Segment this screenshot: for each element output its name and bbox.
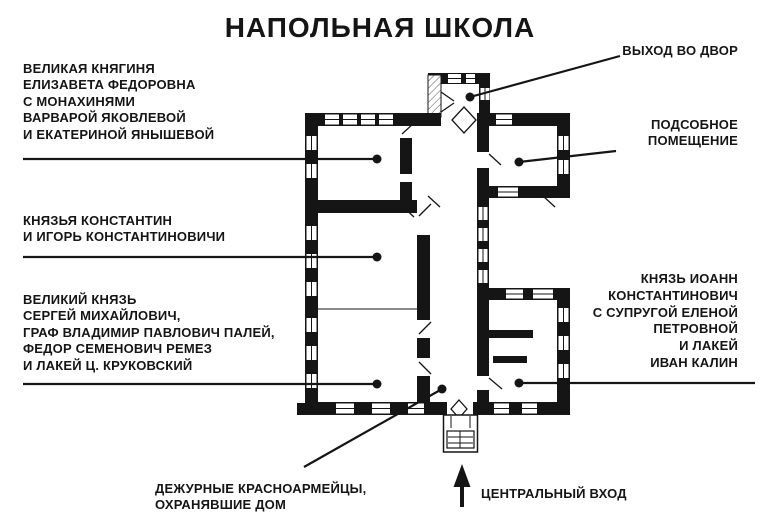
- label-guards: ДЕЖУРНЫЕ КРАСНОАРМЕЙЦЫ, ОХРАНЯВШИЕ ДОМ: [155, 481, 366, 514]
- door-diamond-top: [452, 107, 476, 133]
- label-line: ЕЛИЗАВЕТА ФЕДОРОВНА: [23, 77, 214, 93]
- wall-hall-west-a: [400, 138, 412, 174]
- callout-dot-guards-room: [438, 385, 447, 394]
- label-line: ФЕДОР СЕМЕНОВИЧ РЕМЕЗ: [23, 341, 275, 357]
- wall-south-right: [473, 402, 570, 415]
- windows-interior: [498, 188, 553, 299]
- label-line: ЦЕНТРАЛЬНЫЙ ВХОД: [481, 486, 627, 502]
- label-line: ГРАФ ВЛАДИМИР ПАВЛОВИЧ ПАЛЕЙ,: [23, 325, 275, 341]
- label-line: С СУПРУГОЙ ЕЛЕНОЙ: [593, 305, 738, 322]
- callout-dot-sergey-room: [373, 380, 382, 389]
- wall-corridor-west-b: [417, 338, 430, 358]
- page-title: НАПОЛЬНАЯ ШКОЛА: [0, 12, 760, 44]
- label-sergey: ВЕЛИКИЙ КНЯЗЬ СЕРГЕЙ МИХАЙЛОВИЧ, ГРАФ ВЛ…: [23, 292, 275, 374]
- hatched-wall: [428, 75, 441, 117]
- label-line: И ЛАКЕЙ Ц. КРУКОВСКИЙ: [23, 358, 275, 374]
- wall-utility-bottom: [477, 186, 570, 198]
- callout-line-exit-yard: [470, 56, 620, 97]
- label-line: ДЕЖУРНЫЕ КРАСНОАРМЕЙЦЫ,: [155, 481, 366, 497]
- label-line: ПОДСОБНОЕ: [648, 117, 738, 133]
- windows-east-wall: [559, 136, 569, 378]
- label-elizaveta: ВЕЛИКАЯ КНЯГИНЯ ЕЛИЗАВЕТА ФЕДОРОВНА С МО…: [23, 61, 214, 143]
- entrance-porch: [444, 415, 478, 452]
- wall-corridor-west-a: [417, 235, 430, 320]
- wall-utility-west-b: [477, 168, 489, 198]
- label-ioann: КНЯЗЬ ИОАНН КОНСТАНТИНОВИЧ С СУПРУГОЙ ЕЛ…: [593, 271, 738, 372]
- wall-vestibule-a: [477, 330, 533, 338]
- label-line: ВЕЛИКАЯ КНЯГИНЯ: [23, 61, 214, 77]
- callout-dots: [373, 93, 524, 394]
- label-line: ИВАН КАЛИН: [593, 355, 738, 372]
- callout-line-guards: [304, 389, 442, 467]
- label-line: И ЕКАТЕРИНОЙ ЯНЫШЕВОЙ: [23, 127, 214, 143]
- label-line: ВЫХОД ВО ДВОР: [622, 43, 738, 59]
- entrance-arrow-icon: [454, 464, 471, 507]
- label-line: ОХРАНЯВШИЕ ДОМ: [155, 497, 366, 513]
- label-line: ПЕТРОВНОЙ: [593, 321, 738, 338]
- wall-east-lower: [557, 288, 570, 415]
- callout-dot-exit-yard: [466, 93, 475, 102]
- callout-dot-konstantin-room: [373, 253, 382, 262]
- label-konstantin-igor: КНЯЗЬЯ КОНСТАНТИН И ИГОРЬ КОНСТАНТИНОВИЧ…: [23, 213, 225, 246]
- diagram-page: { "title": "НАПОЛЬНАЯ ШКОЛА", "callouts"…: [0, 0, 760, 532]
- callout-dot-ioann-room: [515, 379, 524, 388]
- wall-rightroom-west-b: [477, 390, 489, 402]
- windows-west-wall: [307, 136, 317, 388]
- wall-utility-west-a: [477, 126, 489, 152]
- wall-top-right: [477, 113, 570, 126]
- label-line: СЕРГЕЙ МИХАЙЛОВИЧ,: [23, 308, 275, 324]
- label-utility-room: ПОДСОБНОЕ ПОМЕЩЕНИЕ: [648, 117, 738, 150]
- label-exit-yard: ВЫХОД ВО ДВОР: [622, 43, 738, 59]
- label-line: ВАРВАРОЙ ЯКОВЛЕВОЙ: [23, 110, 214, 126]
- label-line: КНЯЗЬ ИОАНН: [593, 271, 738, 288]
- label-line: С МОНАХИНЯМИ: [23, 94, 214, 110]
- wall-vestibule-b: [493, 356, 527, 363]
- wall-rightroom-top: [477, 288, 570, 300]
- label-line: И ЛАКЕЙ: [593, 338, 738, 355]
- label-line: И ИГОРЬ КОНСТАНТИНОВИЧИ: [23, 229, 225, 245]
- label-line: КОНСТАНТИНОВИЧ: [593, 288, 738, 305]
- corner-pilaster: [297, 403, 306, 415]
- label-line: ПОМЕЩЕНИЕ: [648, 133, 738, 149]
- label-central-entrance: ЦЕНТРАЛЬНЫЙ ВХОД: [481, 486, 627, 502]
- callout-dot-utility-room: [515, 158, 524, 167]
- callout-dot-elizaveta-room: [373, 155, 382, 164]
- label-line: ВЕЛИКИЙ КНЯЗЬ: [23, 292, 275, 308]
- label-line: КНЯЗЬЯ КОНСТАНТИН: [23, 213, 225, 229]
- wall-hall-west-b: [400, 182, 412, 202]
